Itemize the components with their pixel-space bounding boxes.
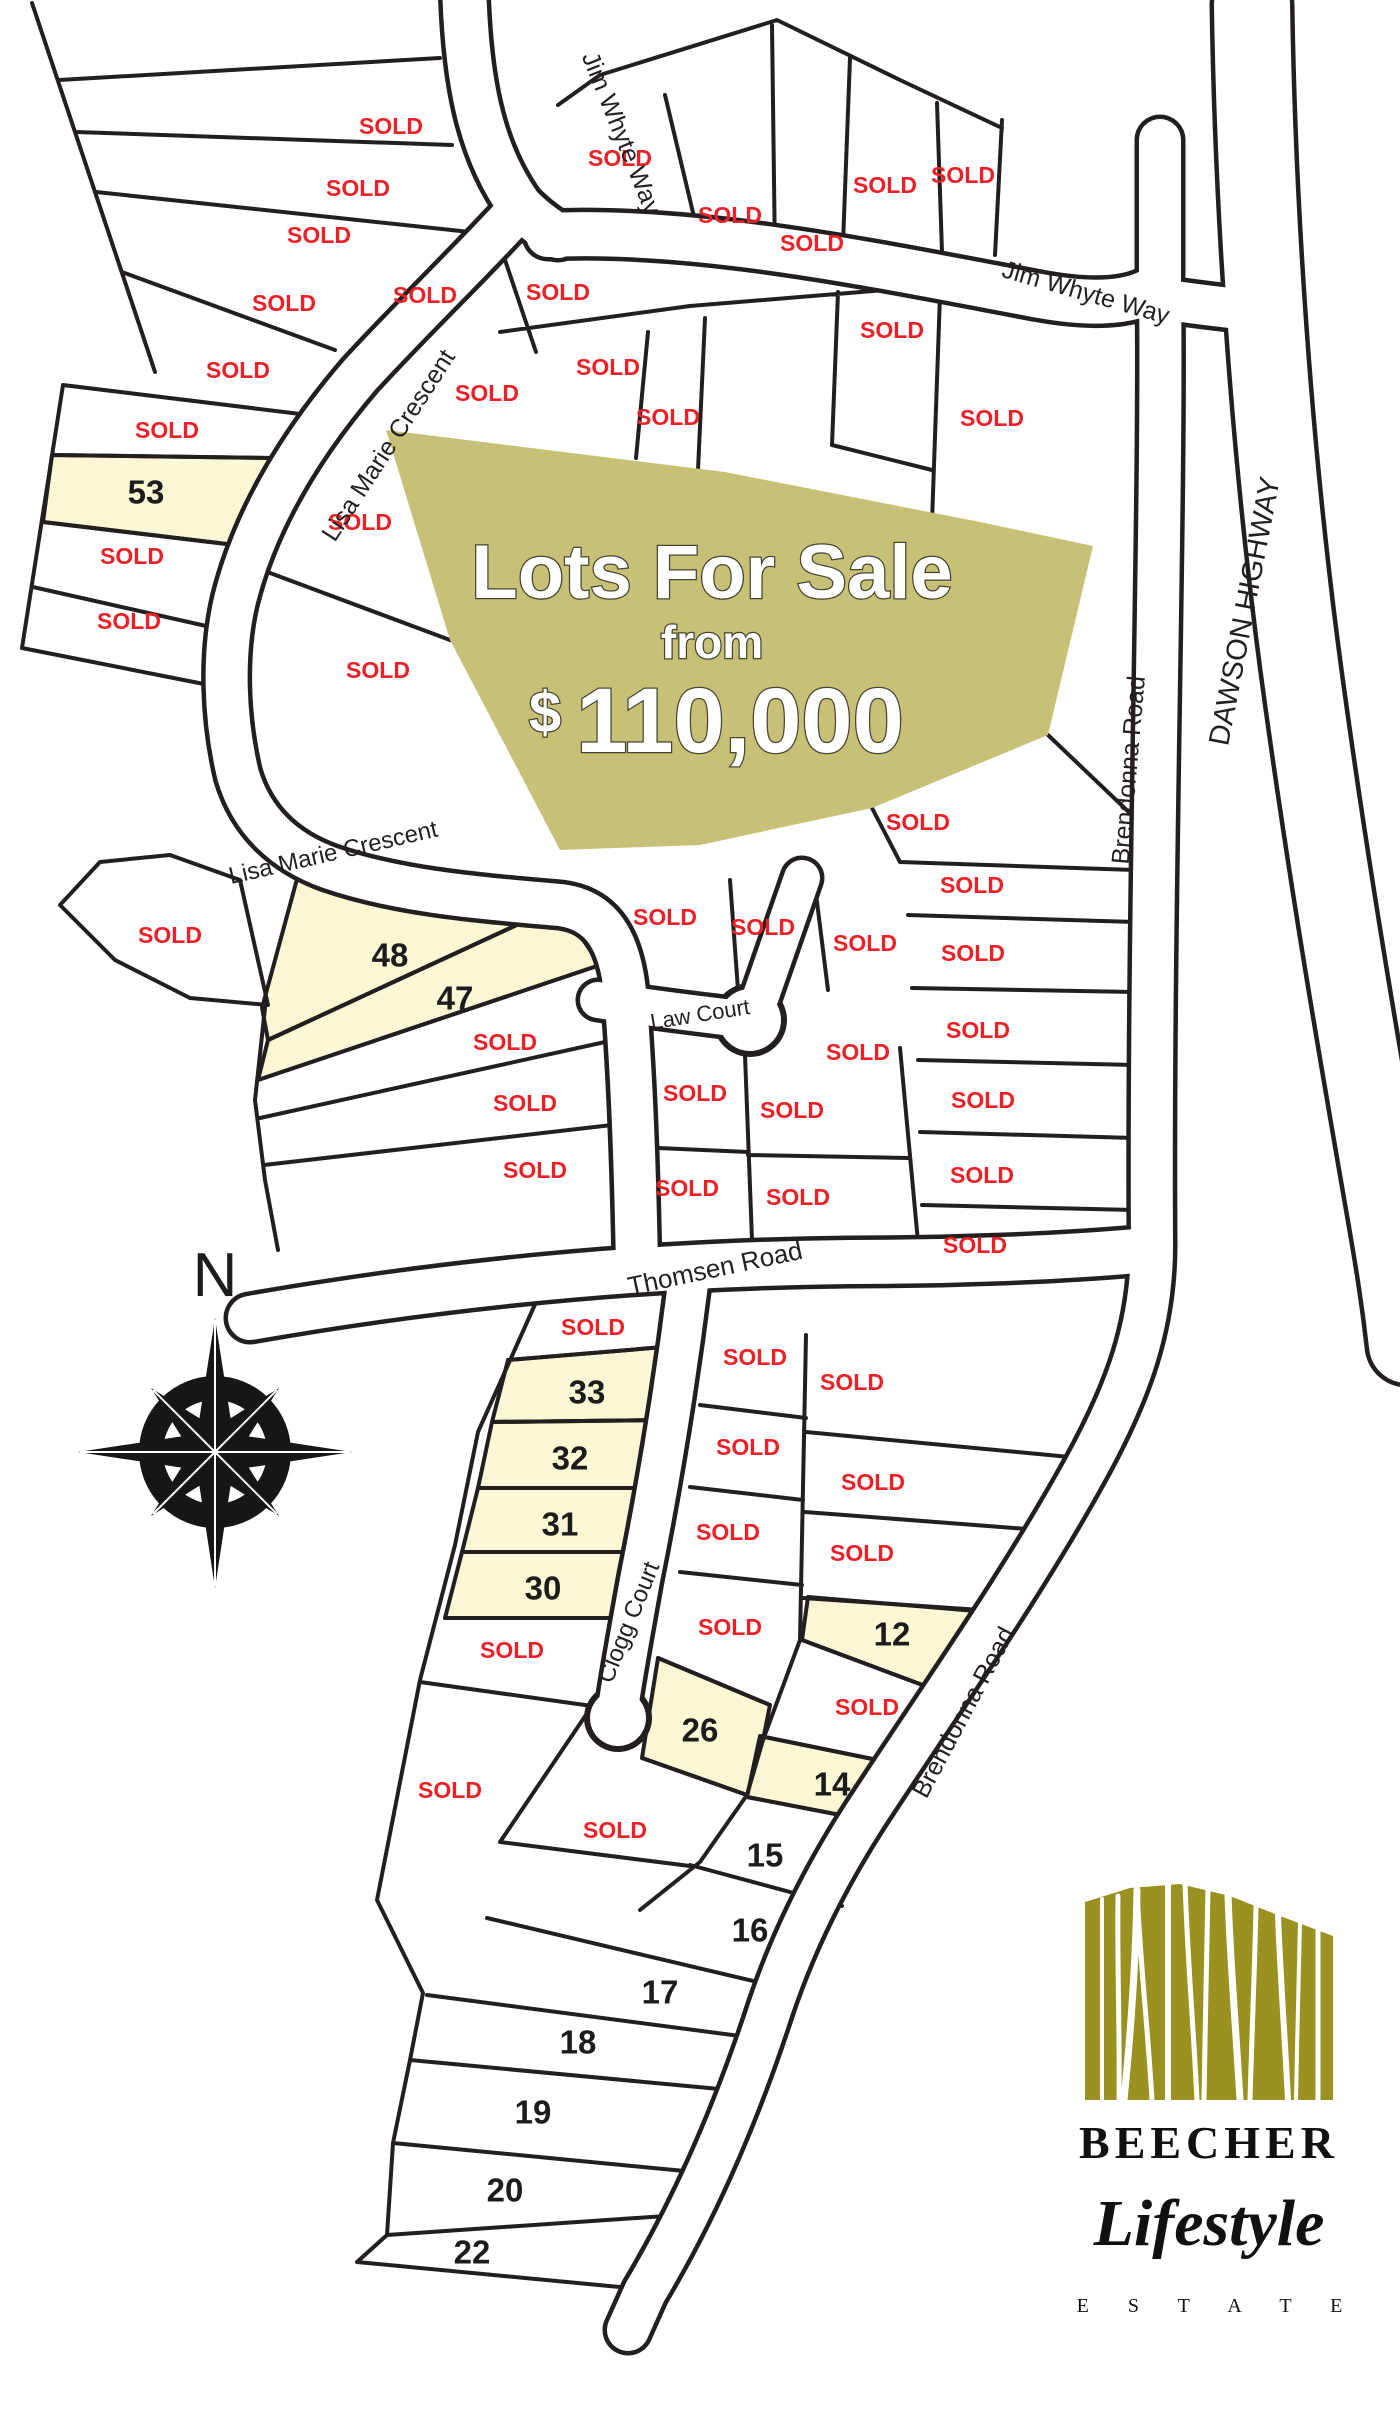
sold-label: SOLD [455,380,519,406]
sold-label: SOLD [393,282,457,308]
sold-label: SOLD [583,1817,647,1843]
banner-from: from [661,616,763,668]
sold-label: SOLD [841,1469,905,1495]
sold-label: SOLD [696,1519,760,1545]
sold-label: SOLD [950,1162,1014,1188]
lot-number-label: 15 [747,1837,784,1874]
sold-label: SOLD [731,914,795,940]
sold-label: SOLD [206,357,270,383]
sold-label: SOLD [576,354,640,380]
sold-label: SOLD [853,172,917,198]
sold-label: SOLD [860,317,924,343]
sold-label: SOLD [766,1184,830,1210]
sold-label: SOLD [663,1080,727,1106]
lot-number-label: 12 [874,1616,911,1653]
banner-headline: Lots For Sale [471,530,952,615]
sold-label: SOLD [931,162,995,188]
estate-logo: BEECHER Lifestyle E S T A T E [1077,1882,1360,2317]
sold-label: SOLD [820,1369,884,1395]
sold-label: SOLD [100,543,164,569]
sold-label: SOLD [946,1017,1010,1043]
lot-number-label: 14 [814,1766,851,1803]
sold-label: SOLD [359,113,423,139]
sold-label: SOLD [960,405,1024,431]
lot-number-label: 48 [372,937,409,974]
sold-label: SOLD [698,1614,762,1640]
subdivision-map-canvas: Lots For Sale from $ 110,000 53484733323… [0,0,1400,2416]
sold-label: SOLD [716,1434,780,1460]
lot-number-label: 20 [487,2172,524,2209]
sold-label: SOLD [473,1029,537,1055]
sold-label: SOLD [135,417,199,443]
sold-label: SOLD [418,1777,482,1803]
logo-brand-name: BEECHER [1079,2117,1339,2168]
sold-label: SOLD [138,922,202,948]
sold-label: SOLD [833,930,897,956]
sold-label: SOLD [636,404,700,430]
lot-number-label: 53 [128,474,165,511]
sold-label: SOLD [326,175,390,201]
sold-label: SOLD [835,1694,899,1720]
sold-label: SOLD [943,1232,1007,1258]
sold-label: SOLD [493,1090,557,1116]
sold-label: SOLD [346,657,410,683]
banner-price: 110,000 [576,670,903,772]
sold-label: SOLD [760,1097,824,1123]
sold-label: SOLD [287,222,351,248]
sold-label: SOLD [633,904,697,930]
sold-label: SOLD [252,290,316,316]
sold-label: SOLD [830,1540,894,1566]
lot-number-label: 26 [682,1712,719,1749]
lot-number-label: 32 [552,1440,589,1477]
lot-number-label: 47 [437,980,474,1017]
lot-number-label: 18 [560,2024,597,2061]
sold-label: SOLD [886,809,950,835]
sold-label: SOLD [951,1087,1015,1113]
logo-subtitle: E S T A T E [1077,2295,1360,2317]
sold-label: SOLD [561,1314,625,1340]
logo-script-word: Lifestyle [1093,2187,1325,2260]
sold-label: SOLD [780,230,844,256]
sold-label: SOLD [723,1344,787,1370]
lot-number-label: 33 [569,1374,606,1411]
estate-lot-map: Lots For Sale from $ 110,000 53484733323… [0,0,1400,2416]
sold-label: SOLD [655,1175,719,1201]
sold-label: SOLD [826,1039,890,1065]
lot-number-label: 16 [732,1912,769,1949]
sold-label: SOLD [941,940,1005,966]
compass-north-label: N [193,1241,238,1310]
lot-number-label: 30 [525,1570,562,1607]
lot-number-label: 31 [542,1506,579,1543]
lot-number-label: 17 [642,1974,679,2011]
sold-label: SOLD [503,1157,567,1183]
banner-price-symbol: $ [529,680,561,745]
lot-number-label: 22 [454,2234,491,2271]
lot-number-label: 19 [515,2094,552,2131]
sold-label: SOLD [526,279,590,305]
sold-label: SOLD [940,872,1004,898]
sold-label: SOLD [97,608,161,634]
sold-label: SOLD [698,202,762,228]
sold-label: SOLD [480,1637,544,1663]
